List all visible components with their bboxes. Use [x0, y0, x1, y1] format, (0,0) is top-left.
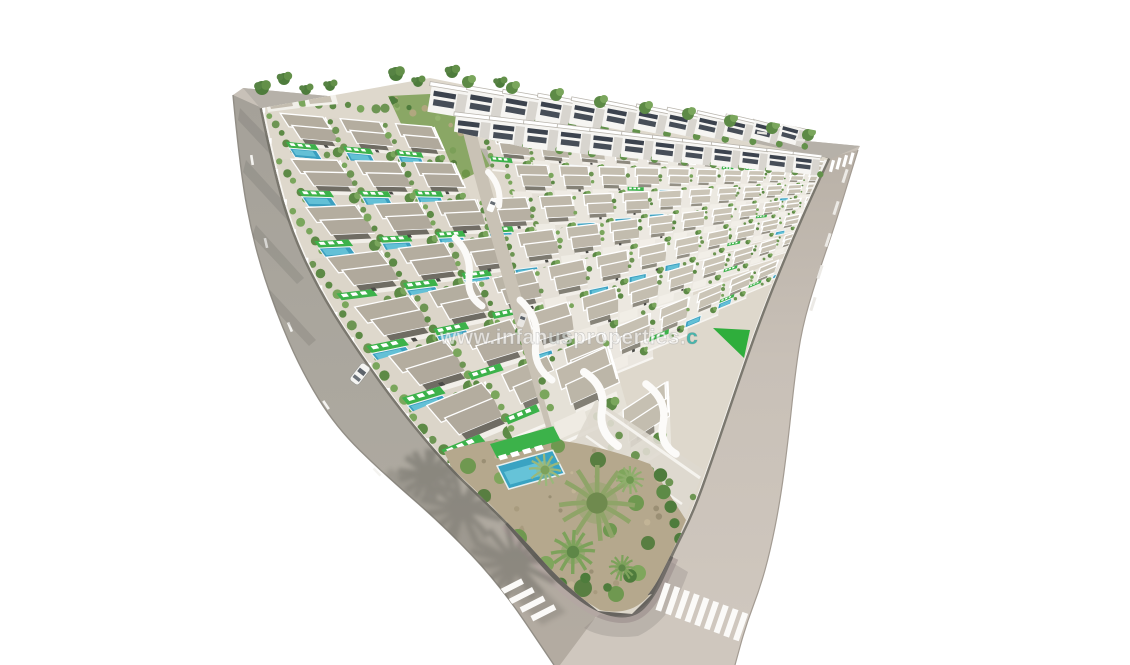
svg-text:www.infanusproperties.c: www.infanusproperties.c: [439, 326, 698, 349]
